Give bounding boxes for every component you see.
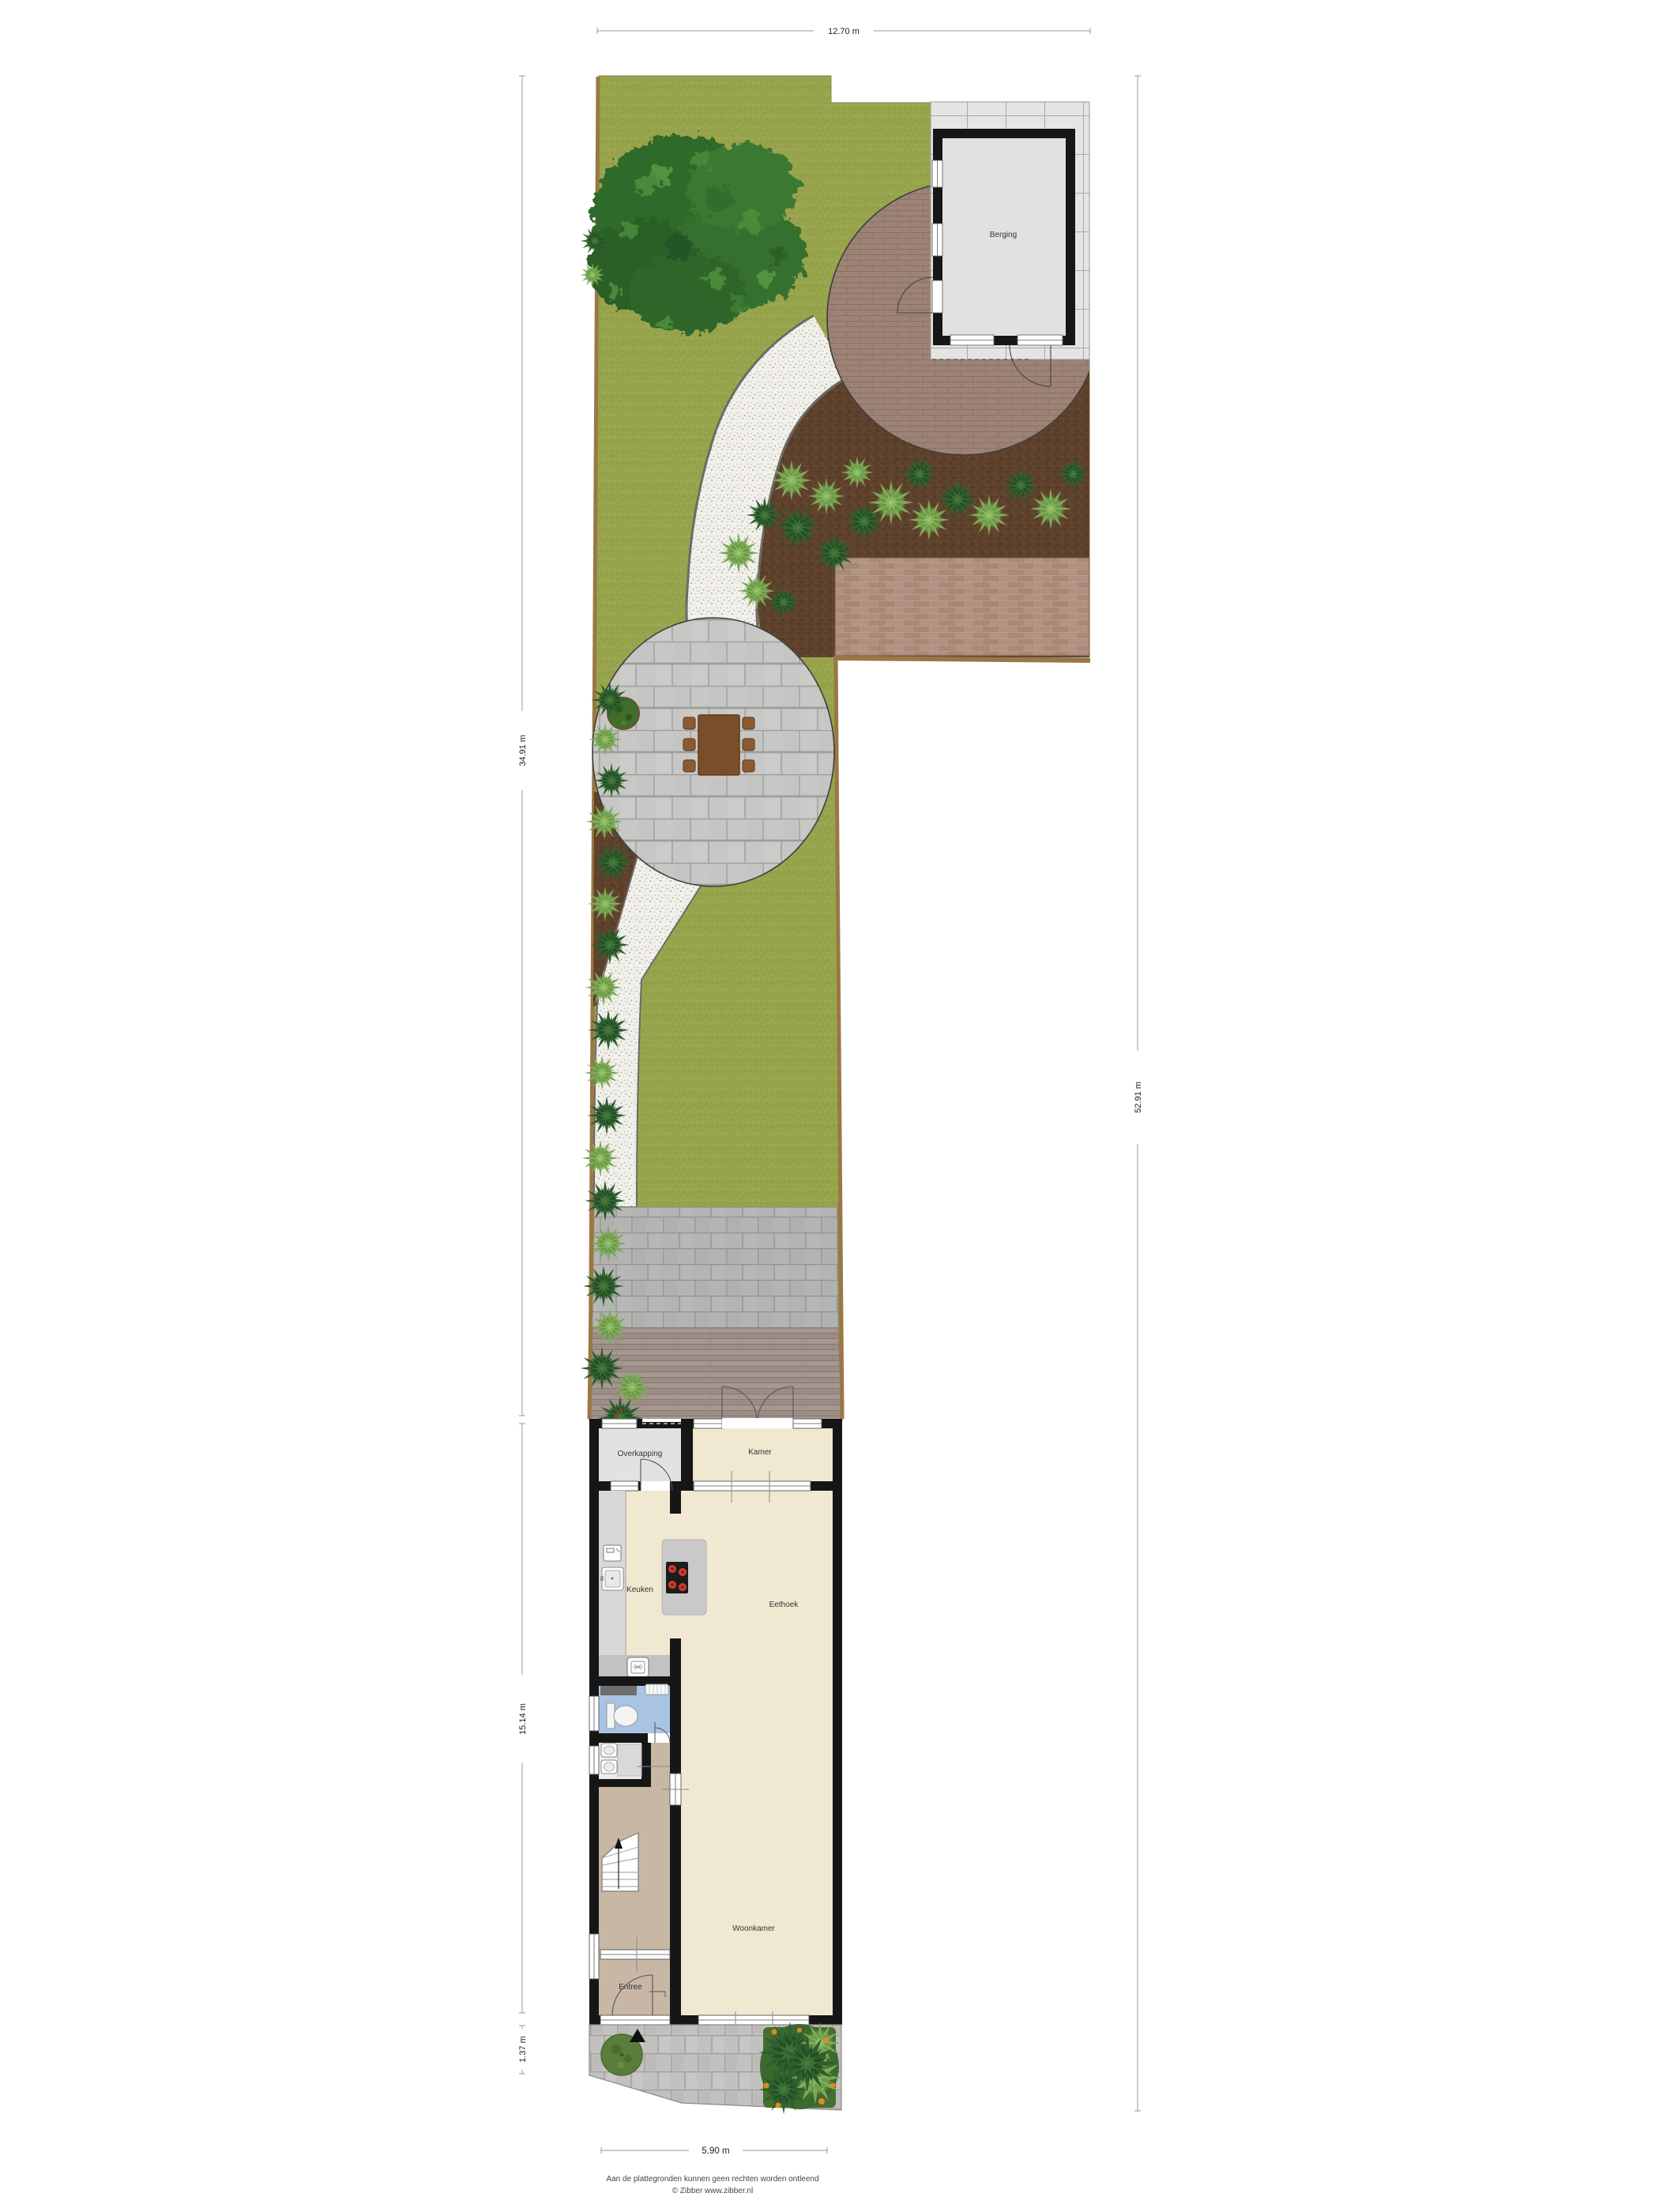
svg-text:52.91 m: 52.91 m — [1134, 1082, 1143, 1113]
svg-text:Aan de plattegronden kunnen ge: Aan de plattegronden kunnen geen rechten… — [606, 2175, 818, 2184]
svg-text:1.37 m: 1.37 m — [518, 2036, 528, 2063]
svg-text:5.90 m: 5.90 m — [702, 2146, 729, 2156]
svg-text:15.14 m: 15.14 m — [518, 1703, 528, 1735]
svg-text:12.70 m: 12.70 m — [828, 27, 860, 36]
svg-text:Eethoek: Eethoek — [769, 1601, 799, 1609]
svg-text:34.91 m: 34.91 m — [518, 735, 528, 766]
svg-text:Entree: Entree — [619, 1983, 642, 1992]
svg-text:Overkapping: Overkapping — [618, 1450, 663, 1458]
svg-text:© Zibber www.zibber.nl: © Zibber www.zibber.nl — [672, 2187, 753, 2195]
svg-text:Woonkamer: Woonkamer — [732, 1924, 775, 1933]
svg-text:Berging: Berging — [990, 231, 1017, 239]
svg-text:Kamer: Kamer — [748, 1448, 772, 1457]
svg-text:Keuken: Keuken — [626, 1586, 653, 1594]
